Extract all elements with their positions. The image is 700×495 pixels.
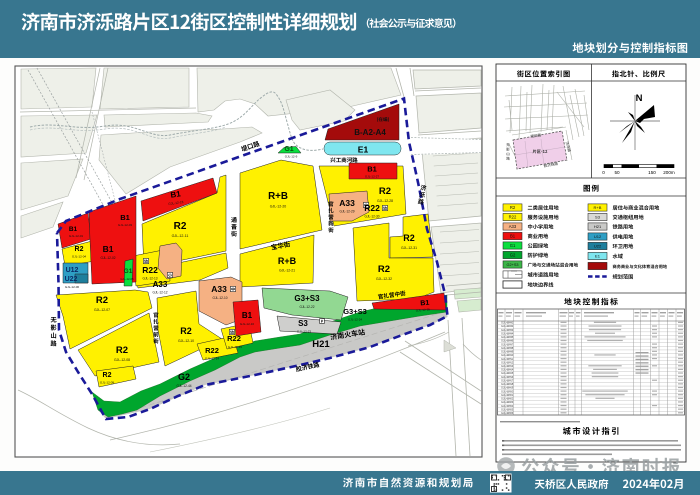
svg-text:B1: B1 xyxy=(69,226,78,233)
svg-text:R+B: R+B xyxy=(278,256,297,266)
svg-text:R22: R22 xyxy=(364,203,380,213)
svg-text:R22: R22 xyxy=(205,346,219,355)
svg-text:GJL-12-10: GJL-12-10 xyxy=(178,339,194,343)
svg-text:GJL-12-05: GJL-12-05 xyxy=(120,277,134,281)
svg-text:GJL-12-12: GJL-12-12 xyxy=(152,291,167,295)
svg-text:A33: A33 xyxy=(153,280,168,289)
svg-text:GJL-12-9: GJL-12-9 xyxy=(285,155,298,159)
svg-text:R2: R2 xyxy=(180,326,192,336)
svg-text:GJL-12-06: GJL-12-06 xyxy=(65,285,80,289)
svg-text:R+B: R+B xyxy=(594,205,602,210)
svg-text:GJL-12-01: GJL-12-01 xyxy=(69,234,84,238)
svg-text:GJL-12-09: GJL-12-09 xyxy=(100,381,115,385)
svg-text:G1: G1 xyxy=(510,243,516,248)
svg-text:G2: G2 xyxy=(178,372,190,382)
svg-text:R22: R22 xyxy=(509,215,517,220)
svg-text:A33: A33 xyxy=(509,224,517,229)
svg-text:R2: R2 xyxy=(75,246,84,253)
svg-text:A33: A33 xyxy=(339,198,355,208)
svg-text:GJL-12-29: GJL-12-29 xyxy=(339,210,354,214)
svg-text:U12: U12 xyxy=(66,267,79,274)
svg-text:H21: H21 xyxy=(312,339,330,350)
svg-text:R2: R2 xyxy=(378,264,390,275)
svg-text:GJL-12-02: GJL-12-02 xyxy=(100,256,115,260)
svg-text:G3+S3: G3+S3 xyxy=(343,307,367,316)
svg-text:GJL-12-24: GJL-12-24 xyxy=(348,318,363,322)
svg-text:G1: G1 xyxy=(124,268,133,275)
svg-text:GJL-12-14: GJL-12-14 xyxy=(205,357,220,361)
svg-text:A33: A33 xyxy=(211,284,227,294)
svg-text:E1: E1 xyxy=(595,254,601,259)
svg-text:GJL-12-21: GJL-12-21 xyxy=(279,269,295,273)
svg-text:S3: S3 xyxy=(298,319,308,328)
svg-text:GJL-12-04: GJL-12-04 xyxy=(72,255,87,259)
svg-text:G1: G1 xyxy=(284,146,293,153)
svg-text:GJL-12-11: GJL-12-11 xyxy=(172,234,189,238)
svg-text:GJL-12-20: GJL-12-20 xyxy=(270,205,287,209)
svg-text:GJL-12-31: GJL-12-31 xyxy=(401,246,417,250)
svg-text:GJL-12-30: GJL-12-30 xyxy=(364,215,379,219)
svg-text:R22: R22 xyxy=(227,334,241,343)
svg-text:B1: B1 xyxy=(367,165,377,174)
svg-text:200m: 200m xyxy=(663,170,675,175)
svg-text:S3: S3 xyxy=(595,215,601,220)
svg-text:H21: H21 xyxy=(594,224,602,229)
svg-text:B1: B1 xyxy=(170,189,182,199)
svg-text:B1: B1 xyxy=(120,213,130,222)
svg-text:B1: B1 xyxy=(242,311,253,320)
svg-text:U22: U22 xyxy=(594,244,602,249)
svg-text:50: 50 xyxy=(614,170,620,175)
svg-text:GJL-12-15: GJL-12-15 xyxy=(228,345,243,349)
svg-text:U12: U12 xyxy=(594,234,602,239)
svg-text:GJL-12-44: GJL-12-44 xyxy=(176,384,191,388)
svg-text:R2: R2 xyxy=(379,186,391,197)
svg-text:R2: R2 xyxy=(403,233,415,243)
svg-text:R2: R2 xyxy=(174,221,187,232)
svg-text:0: 0 xyxy=(602,170,605,175)
svg-text:R2: R2 xyxy=(103,372,112,379)
svg-text:R2: R2 xyxy=(96,295,108,306)
svg-text:GJL-12-10: GJL-12-10 xyxy=(212,296,227,300)
svg-text:R22: R22 xyxy=(142,265,158,275)
svg-text:N: N xyxy=(636,93,643,104)
svg-text:R+B: R+B xyxy=(268,191,288,202)
svg-text:B1: B1 xyxy=(420,300,430,308)
svg-text:GJL-12-08: GJL-12-08 xyxy=(114,358,130,362)
svg-text:GJL-12-16: GJL-12-16 xyxy=(240,322,255,326)
svg-text:E1: E1 xyxy=(358,145,369,155)
svg-text:GJL-12-23: GJL-12-23 xyxy=(297,330,312,334)
svg-text:GJL-12-32: GJL-12-32 xyxy=(376,277,392,281)
svg-text:G2: G2 xyxy=(510,253,516,258)
svg-text:R2: R2 xyxy=(510,205,516,210)
svg-text:GJL-12-22: GJL-12-22 xyxy=(299,305,314,309)
svg-text:B1: B1 xyxy=(103,244,114,254)
svg-text:R2: R2 xyxy=(116,345,128,356)
svg-text:GJL-12-27: GJL-12-27 xyxy=(365,175,380,179)
svg-text:150: 150 xyxy=(648,170,656,175)
svg-text:U22: U22 xyxy=(65,276,78,283)
svg-text:GJL-12-07: GJL-12-07 xyxy=(94,308,110,312)
svg-text:G3+S3: G3+S3 xyxy=(294,294,320,303)
svg-text:GJL-12-03: GJL-12-03 xyxy=(118,223,133,227)
svg-text:G2+S3: G2+S3 xyxy=(507,263,519,267)
svg-text:B-A2-A4: B-A2-A4 xyxy=(354,128,386,137)
svg-text:B1: B1 xyxy=(510,234,516,239)
